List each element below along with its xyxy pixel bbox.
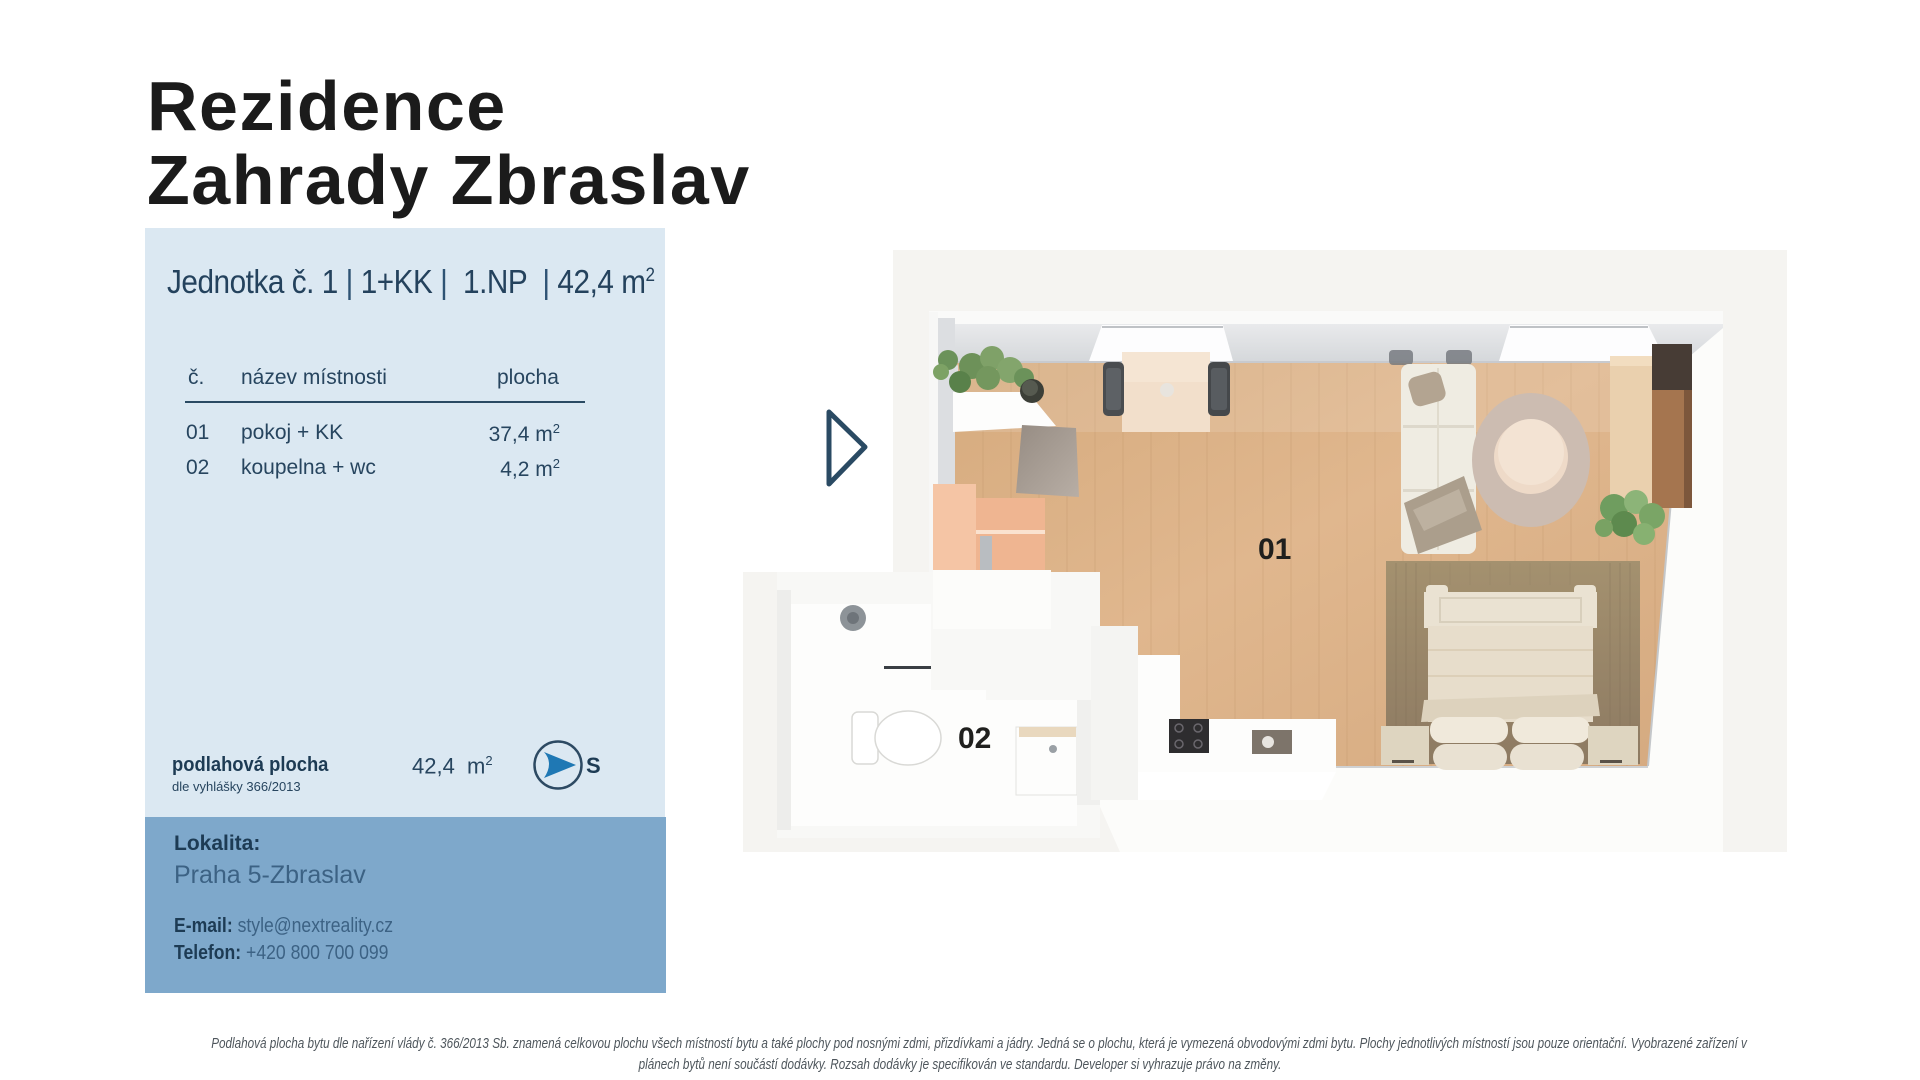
svg-text:02: 02 [958, 722, 991, 755]
svg-text:01: 01 [1258, 533, 1291, 566]
